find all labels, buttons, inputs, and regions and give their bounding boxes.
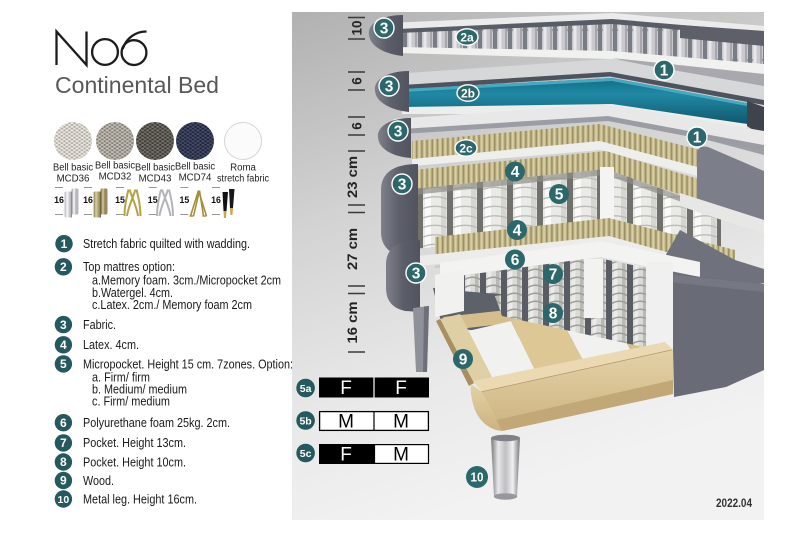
svg-text:4: 4	[511, 164, 520, 181]
svg-text:5c: 5c	[300, 448, 312, 460]
svg-text:5a: 5a	[300, 383, 312, 395]
svg-text:Pocket. Height 10cm.: Pocket. Height 10cm.	[83, 454, 186, 469]
svg-text:Polyurethane foam 25kg. 2cm.: Polyurethane foam 25kg. 2cm.	[83, 415, 230, 430]
svg-text:6: 6	[350, 77, 365, 85]
svg-text:MCD32: MCD32	[99, 172, 132, 183]
svg-text:2c: 2c	[459, 141, 473, 155]
svg-text:Latex. 4cm.: Latex. 4cm.	[83, 337, 139, 352]
svg-text:2b: 2b	[461, 86, 475, 100]
svg-text:3: 3	[380, 21, 389, 38]
svg-text:15: 15	[115, 195, 125, 205]
svg-text:3: 3	[385, 79, 394, 96]
svg-text:Pocket. Height 13cm.: Pocket. Height 13cm.	[83, 435, 186, 450]
svg-text:c. Firm/ medium: c. Firm/ medium	[92, 394, 170, 409]
svg-text:1: 1	[660, 63, 669, 80]
svg-text:6: 6	[60, 416, 67, 430]
svg-text:Continental Bed: Continental Bed	[55, 72, 219, 98]
svg-text:M: M	[338, 412, 354, 433]
svg-text:7: 7	[60, 436, 67, 450]
svg-text:8: 8	[549, 306, 558, 323]
svg-text:2022.04: 2022.04	[716, 498, 753, 510]
svg-text:1: 1	[693, 130, 702, 147]
svg-text:16: 16	[83, 195, 93, 205]
svg-text:5: 5	[555, 187, 564, 204]
svg-text:15: 15	[180, 195, 190, 205]
svg-text:M: M	[393, 412, 409, 433]
svg-text:MCD43: MCD43	[139, 174, 172, 185]
svg-text:3: 3	[412, 266, 421, 283]
svg-text:5: 5	[60, 357, 67, 371]
svg-text:Roma: Roma	[230, 163, 256, 174]
svg-text:Fabric.: Fabric.	[83, 317, 116, 332]
svg-text:stretch fabric: stretch fabric	[217, 174, 269, 185]
svg-text:6: 6	[511, 252, 520, 269]
svg-text:Stretch fabric quilted with wa: Stretch fabric quilted with wadding.	[83, 236, 250, 251]
svg-text:c.Latex. 2cm./ Memory foam 2cm: c.Latex. 2cm./ Memory foam 2cm	[92, 297, 252, 312]
svg-text:9: 9	[60, 474, 67, 488]
svg-text:F: F	[340, 378, 352, 399]
svg-text:MCD74: MCD74	[179, 173, 212, 184]
svg-text:10: 10	[471, 471, 484, 485]
svg-text:MCD36: MCD36	[57, 174, 90, 185]
svg-text:3: 3	[398, 177, 407, 194]
svg-text:8: 8	[60, 455, 67, 469]
svg-text:F: F	[395, 378, 407, 399]
svg-text:2a: 2a	[460, 30, 474, 44]
svg-text:F: F	[340, 445, 352, 466]
svg-text:Bell basic: Bell basic	[53, 163, 93, 174]
svg-text:1: 1	[61, 237, 68, 251]
svg-text:Metal leg. Height 16cm.: Metal leg. Height 16cm.	[83, 491, 197, 506]
svg-text:Bell basic: Bell basic	[95, 161, 135, 172]
svg-text:6: 6	[350, 122, 365, 130]
svg-text:10: 10	[58, 494, 70, 506]
svg-text:16 cm: 16 cm	[345, 302, 360, 344]
svg-text:10: 10	[350, 20, 365, 35]
svg-text:2: 2	[60, 260, 67, 274]
svg-text:4: 4	[513, 223, 522, 240]
svg-text:9: 9	[459, 352, 468, 369]
svg-text:Bell basic: Bell basic	[135, 163, 175, 174]
svg-text:4: 4	[60, 338, 67, 352]
svg-text:5b: 5b	[299, 415, 311, 427]
svg-text:3: 3	[60, 318, 67, 332]
svg-text:16: 16	[54, 195, 64, 205]
svg-text:7: 7	[549, 267, 558, 284]
svg-text:Wood.: Wood.	[83, 473, 114, 488]
svg-text:23 cm: 23 cm	[345, 156, 360, 198]
svg-text:3: 3	[394, 124, 403, 141]
svg-text:15: 15	[148, 195, 158, 205]
svg-text:16: 16	[211, 195, 221, 205]
svg-text:27 cm: 27 cm	[345, 228, 360, 270]
svg-text:Bell basic: Bell basic	[175, 162, 215, 173]
svg-text:M: M	[393, 445, 409, 466]
